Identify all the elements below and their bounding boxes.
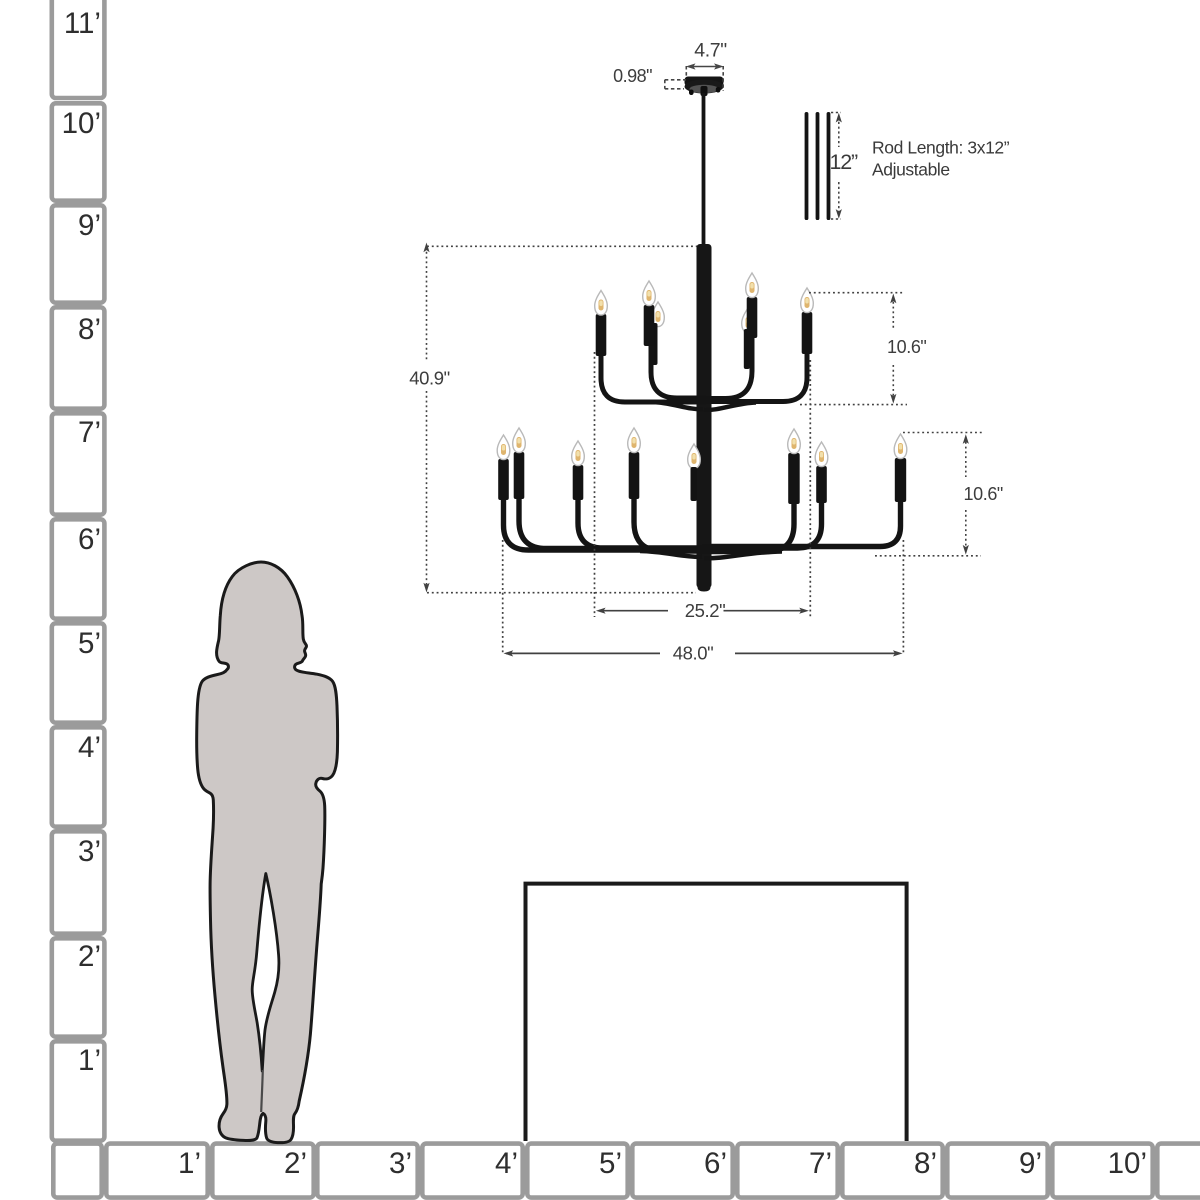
svg-text:9’: 9’ <box>1019 1147 1042 1180</box>
svg-text:40.9": 40.9" <box>409 368 450 389</box>
svg-text:Adjustable: Adjustable <box>872 160 950 180</box>
svg-text:12”: 12” <box>830 150 859 174</box>
svg-text:4’: 4’ <box>78 731 101 764</box>
svg-text:10’: 10’ <box>1108 1147 1147 1180</box>
svg-text:25.2": 25.2" <box>685 600 726 621</box>
svg-text:10’: 10’ <box>62 107 101 140</box>
svg-text:5’: 5’ <box>599 1147 622 1180</box>
svg-text:1’: 1’ <box>178 1147 201 1180</box>
svg-text:6’: 6’ <box>78 523 101 556</box>
svg-text:11’: 11’ <box>64 7 101 40</box>
svg-text:6’: 6’ <box>704 1147 727 1180</box>
svg-text:3’: 3’ <box>389 1147 412 1180</box>
svg-text:9’: 9’ <box>78 209 101 242</box>
svg-text:8’: 8’ <box>78 313 101 346</box>
svg-text:5’: 5’ <box>78 627 101 660</box>
svg-text:7’: 7’ <box>78 416 101 449</box>
svg-text:2’: 2’ <box>78 940 101 973</box>
svg-text:7’: 7’ <box>809 1147 832 1180</box>
svg-text:1’: 1’ <box>78 1044 101 1077</box>
svg-text:Rod Length: 3x12”: Rod Length: 3x12” <box>872 138 1010 158</box>
svg-text:2’: 2’ <box>284 1147 307 1180</box>
svg-text:4.7": 4.7" <box>694 40 727 62</box>
svg-text:3’: 3’ <box>78 835 101 868</box>
svg-text:0.98": 0.98" <box>613 66 652 86</box>
svg-text:8’: 8’ <box>914 1147 937 1180</box>
svg-text:48.0": 48.0" <box>673 643 714 664</box>
svg-text:10.6": 10.6" <box>887 337 926 357</box>
svg-text:10.6": 10.6" <box>964 484 1003 504</box>
svg-text:4’: 4’ <box>495 1147 518 1180</box>
